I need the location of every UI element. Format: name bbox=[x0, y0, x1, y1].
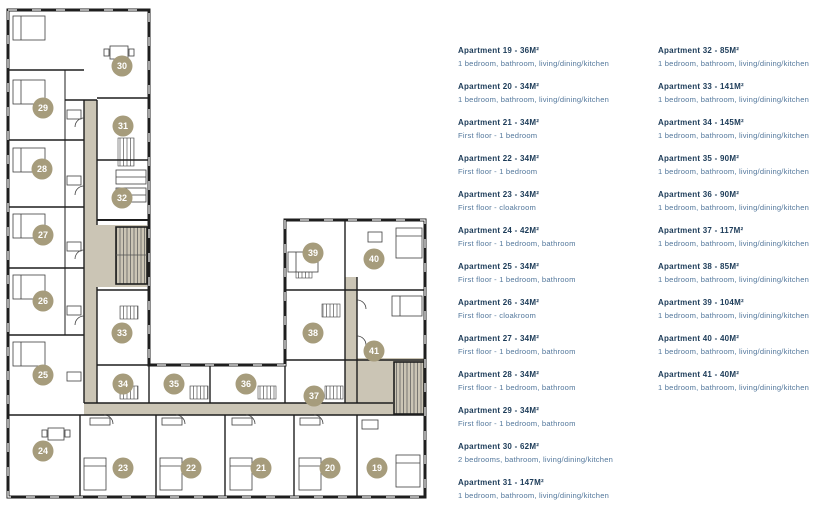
apartment-title: Apartment 20 - 34M² bbox=[458, 82, 656, 91]
apartment-desc: 1 bedroom, bathroom, living/dining/kitch… bbox=[658, 203, 822, 212]
apartment-title: Apartment 23 - 34M² bbox=[458, 190, 656, 199]
apartment-desc: First floor - 1 bedroom, bathroom bbox=[458, 419, 656, 428]
apartment-listing: Apartment 24 - 42M²First floor - 1 bedro… bbox=[458, 226, 656, 248]
apartment-title: Apartment 26 - 34M² bbox=[458, 298, 656, 307]
apartment-marker-label: 37 bbox=[309, 391, 319, 401]
apartment-title: Apartment 35 - 90M² bbox=[658, 154, 822, 163]
apartment-listing: Apartment 26 - 34M²First floor - cloakro… bbox=[458, 298, 656, 320]
apartment-listing: Apartment 25 - 34M²First floor - 1 bedro… bbox=[458, 262, 656, 284]
apartment-desc: 1 bedroom, bathroom, living/dining/kitch… bbox=[658, 311, 822, 320]
apartment-title: Apartment 38 - 85M² bbox=[658, 262, 822, 271]
apartment-desc: 1 bedroom, bathroom, living/dining/kitch… bbox=[658, 59, 822, 68]
apartment-desc: First floor - 1 bedroom, bathroom bbox=[458, 383, 656, 392]
apartment-marker-label: 19 bbox=[372, 463, 382, 473]
apartment-marker-label: 24 bbox=[38, 446, 48, 456]
apartment-marker-label: 30 bbox=[117, 61, 127, 71]
apartment-desc: First floor - cloakroom bbox=[458, 311, 656, 320]
apartment-listing: Apartment 41 - 40M²1 bedroom, bathroom, … bbox=[658, 370, 822, 392]
apartment-desc: 1 bedroom, bathroom, living/dining/kitch… bbox=[658, 95, 822, 104]
apartment-title: Apartment 30 - 62M² bbox=[458, 442, 656, 451]
apartment-title: Apartment 39 - 104M² bbox=[658, 298, 822, 307]
apartment-title: Apartment 24 - 42M² bbox=[458, 226, 656, 235]
apartment-title: Apartment 41 - 40M² bbox=[658, 370, 822, 379]
apartment-desc: 1 bedroom, bathroom, living/dining/kitch… bbox=[658, 131, 822, 140]
apartment-title: Apartment 29 - 34M² bbox=[458, 406, 656, 415]
apartment-title: Apartment 25 - 34M² bbox=[458, 262, 656, 271]
apartment-desc: 1 bedroom, bathroom, living/dining/kitch… bbox=[458, 59, 656, 68]
apartment-listing: Apartment 37 - 117M²1 bedroom, bathroom,… bbox=[658, 226, 822, 248]
apartment-listing: Apartment 36 - 90M²1 bedroom, bathroom, … bbox=[658, 190, 822, 212]
apartment-title: Apartment 27 - 34M² bbox=[458, 334, 656, 343]
apartment-desc: 1 bedroom, bathroom, living/dining/kitch… bbox=[458, 95, 656, 104]
apartment-listing: Apartment 35 - 90M²1 bedroom, bathroom, … bbox=[658, 154, 822, 176]
apartment-desc: 1 bedroom, bathroom, living/dining/kitch… bbox=[658, 347, 822, 356]
apartment-listing: Apartment 23 - 34M²First floor - cloakro… bbox=[458, 190, 656, 212]
apartment-desc: First floor - 1 bedroom, bathroom bbox=[458, 275, 656, 284]
apartment-desc: First floor - 1 bedroom, bathroom bbox=[458, 239, 656, 248]
apartment-title: Apartment 19 - 36M² bbox=[458, 46, 656, 55]
apartment-marker-label: 26 bbox=[38, 296, 48, 306]
apartment-listing: Apartment 22 - 34M²First floor - 1 bedro… bbox=[458, 154, 656, 176]
apartment-desc: 1 bedroom, bathroom, living/dining/kitch… bbox=[458, 491, 656, 500]
apartment-desc: First floor - 1 bedroom, bathroom bbox=[458, 347, 656, 356]
apartment-listing: Apartment 20 - 34M²1 bedroom, bathroom, … bbox=[458, 82, 656, 104]
apartment-marker-label: 21 bbox=[256, 463, 266, 473]
apartment-marker-label: 40 bbox=[369, 254, 379, 264]
apartment-desc: 1 bedroom, bathroom, living/dining/kitch… bbox=[658, 275, 822, 284]
apartment-listing: Apartment 21 - 34M²First floor - 1 bedro… bbox=[458, 118, 656, 140]
apartment-listing: Apartment 33 - 141M²1 bedroom, bathroom,… bbox=[658, 82, 822, 104]
apartment-title: Apartment 33 - 141M² bbox=[658, 82, 822, 91]
apartment-listing: Apartment 39 - 104M²1 bedroom, bathroom,… bbox=[658, 298, 822, 320]
apartment-listing: Apartment 34 - 145M²1 bedroom, bathroom,… bbox=[658, 118, 822, 140]
listing-column1: Apartment 19 - 36M²1 bedroom, bathroom, … bbox=[458, 0, 656, 507]
apartment-desc: First floor - 1 bedroom bbox=[458, 167, 656, 176]
apartment-listing: Apartment 31 - 147M²1 bedroom, bathroom,… bbox=[458, 478, 656, 500]
floor-plan: 1920212223242526272829303132333435363738… bbox=[0, 0, 455, 507]
apartment-desc: 1 bedroom, bathroom, living/dining/kitch… bbox=[658, 383, 822, 392]
apartment-marker-label: 41 bbox=[369, 346, 379, 356]
apartment-desc: First floor - 1 bedroom bbox=[458, 131, 656, 140]
apartment-title: Apartment 34 - 145M² bbox=[658, 118, 822, 127]
page: 1920212223242526272829303132333435363738… bbox=[0, 0, 824, 507]
apartment-title: Apartment 40 - 40M² bbox=[658, 334, 822, 343]
listing-column2: Apartment 32 - 85M²1 bedroom, bathroom, … bbox=[658, 0, 822, 406]
apartment-listing: Apartment 29 - 34M²First floor - 1 bedro… bbox=[458, 406, 656, 428]
apartment-title: Apartment 37 - 117M² bbox=[658, 226, 822, 235]
apartment-listing: Apartment 38 - 85M²1 bedroom, bathroom, … bbox=[658, 262, 822, 284]
apartment-marker-label: 22 bbox=[186, 463, 196, 473]
apartment-title: Apartment 21 - 34M² bbox=[458, 118, 656, 127]
apartment-desc: 2 bedrooms, bathroom, living/dining/kitc… bbox=[458, 455, 656, 464]
apartment-title: Apartment 22 - 34M² bbox=[458, 154, 656, 163]
apartment-marker-label: 28 bbox=[37, 164, 47, 174]
apartment-marker-label: 31 bbox=[118, 121, 128, 131]
apartment-marker-label: 20 bbox=[325, 463, 335, 473]
apartment-listing: Apartment 32 - 85M²1 bedroom, bathroom, … bbox=[658, 46, 822, 68]
apartment-desc: First floor - cloakroom bbox=[458, 203, 656, 212]
floor-plan-svg: 1920212223242526272829303132333435363738… bbox=[0, 0, 455, 507]
apartment-marker-label: 34 bbox=[118, 379, 128, 389]
apartment-marker-label: 25 bbox=[38, 370, 48, 380]
apartment-title: Apartment 32 - 85M² bbox=[658, 46, 822, 55]
apartment-desc: 1 bedroom, bathroom, living/dining/kitch… bbox=[658, 239, 822, 248]
apartment-marker-label: 39 bbox=[308, 248, 318, 258]
apartment-marker-label: 36 bbox=[241, 379, 251, 389]
apartment-marker-label: 35 bbox=[169, 379, 179, 389]
apartment-desc: 1 bedroom, bathroom, living/dining/kitch… bbox=[658, 167, 822, 176]
apartment-listing: Apartment 28 - 34M²First floor - 1 bedro… bbox=[458, 370, 656, 392]
apartment-listing: Apartment 27 - 34M²First floor - 1 bedro… bbox=[458, 334, 656, 356]
apartment-marker-label: 33 bbox=[117, 328, 127, 338]
apartment-title: Apartment 36 - 90M² bbox=[658, 190, 822, 199]
apartment-listing: Apartment 40 - 40M²1 bedroom, bathroom, … bbox=[658, 334, 822, 356]
apartment-title: Apartment 28 - 34M² bbox=[458, 370, 656, 379]
apartment-marker-label: 23 bbox=[118, 463, 128, 473]
apartment-listing: Apartment 19 - 36M²1 bedroom, bathroom, … bbox=[458, 46, 656, 68]
apartment-marker-label: 29 bbox=[38, 103, 48, 113]
apartment-marker-label: 32 bbox=[117, 193, 127, 203]
apartment-marker-label: 27 bbox=[38, 230, 48, 240]
apartment-title: Apartment 31 - 147M² bbox=[458, 478, 656, 487]
apartment-marker-label: 38 bbox=[308, 328, 318, 338]
apartment-listing: Apartment 30 - 62M²2 bedrooms, bathroom,… bbox=[458, 442, 656, 464]
